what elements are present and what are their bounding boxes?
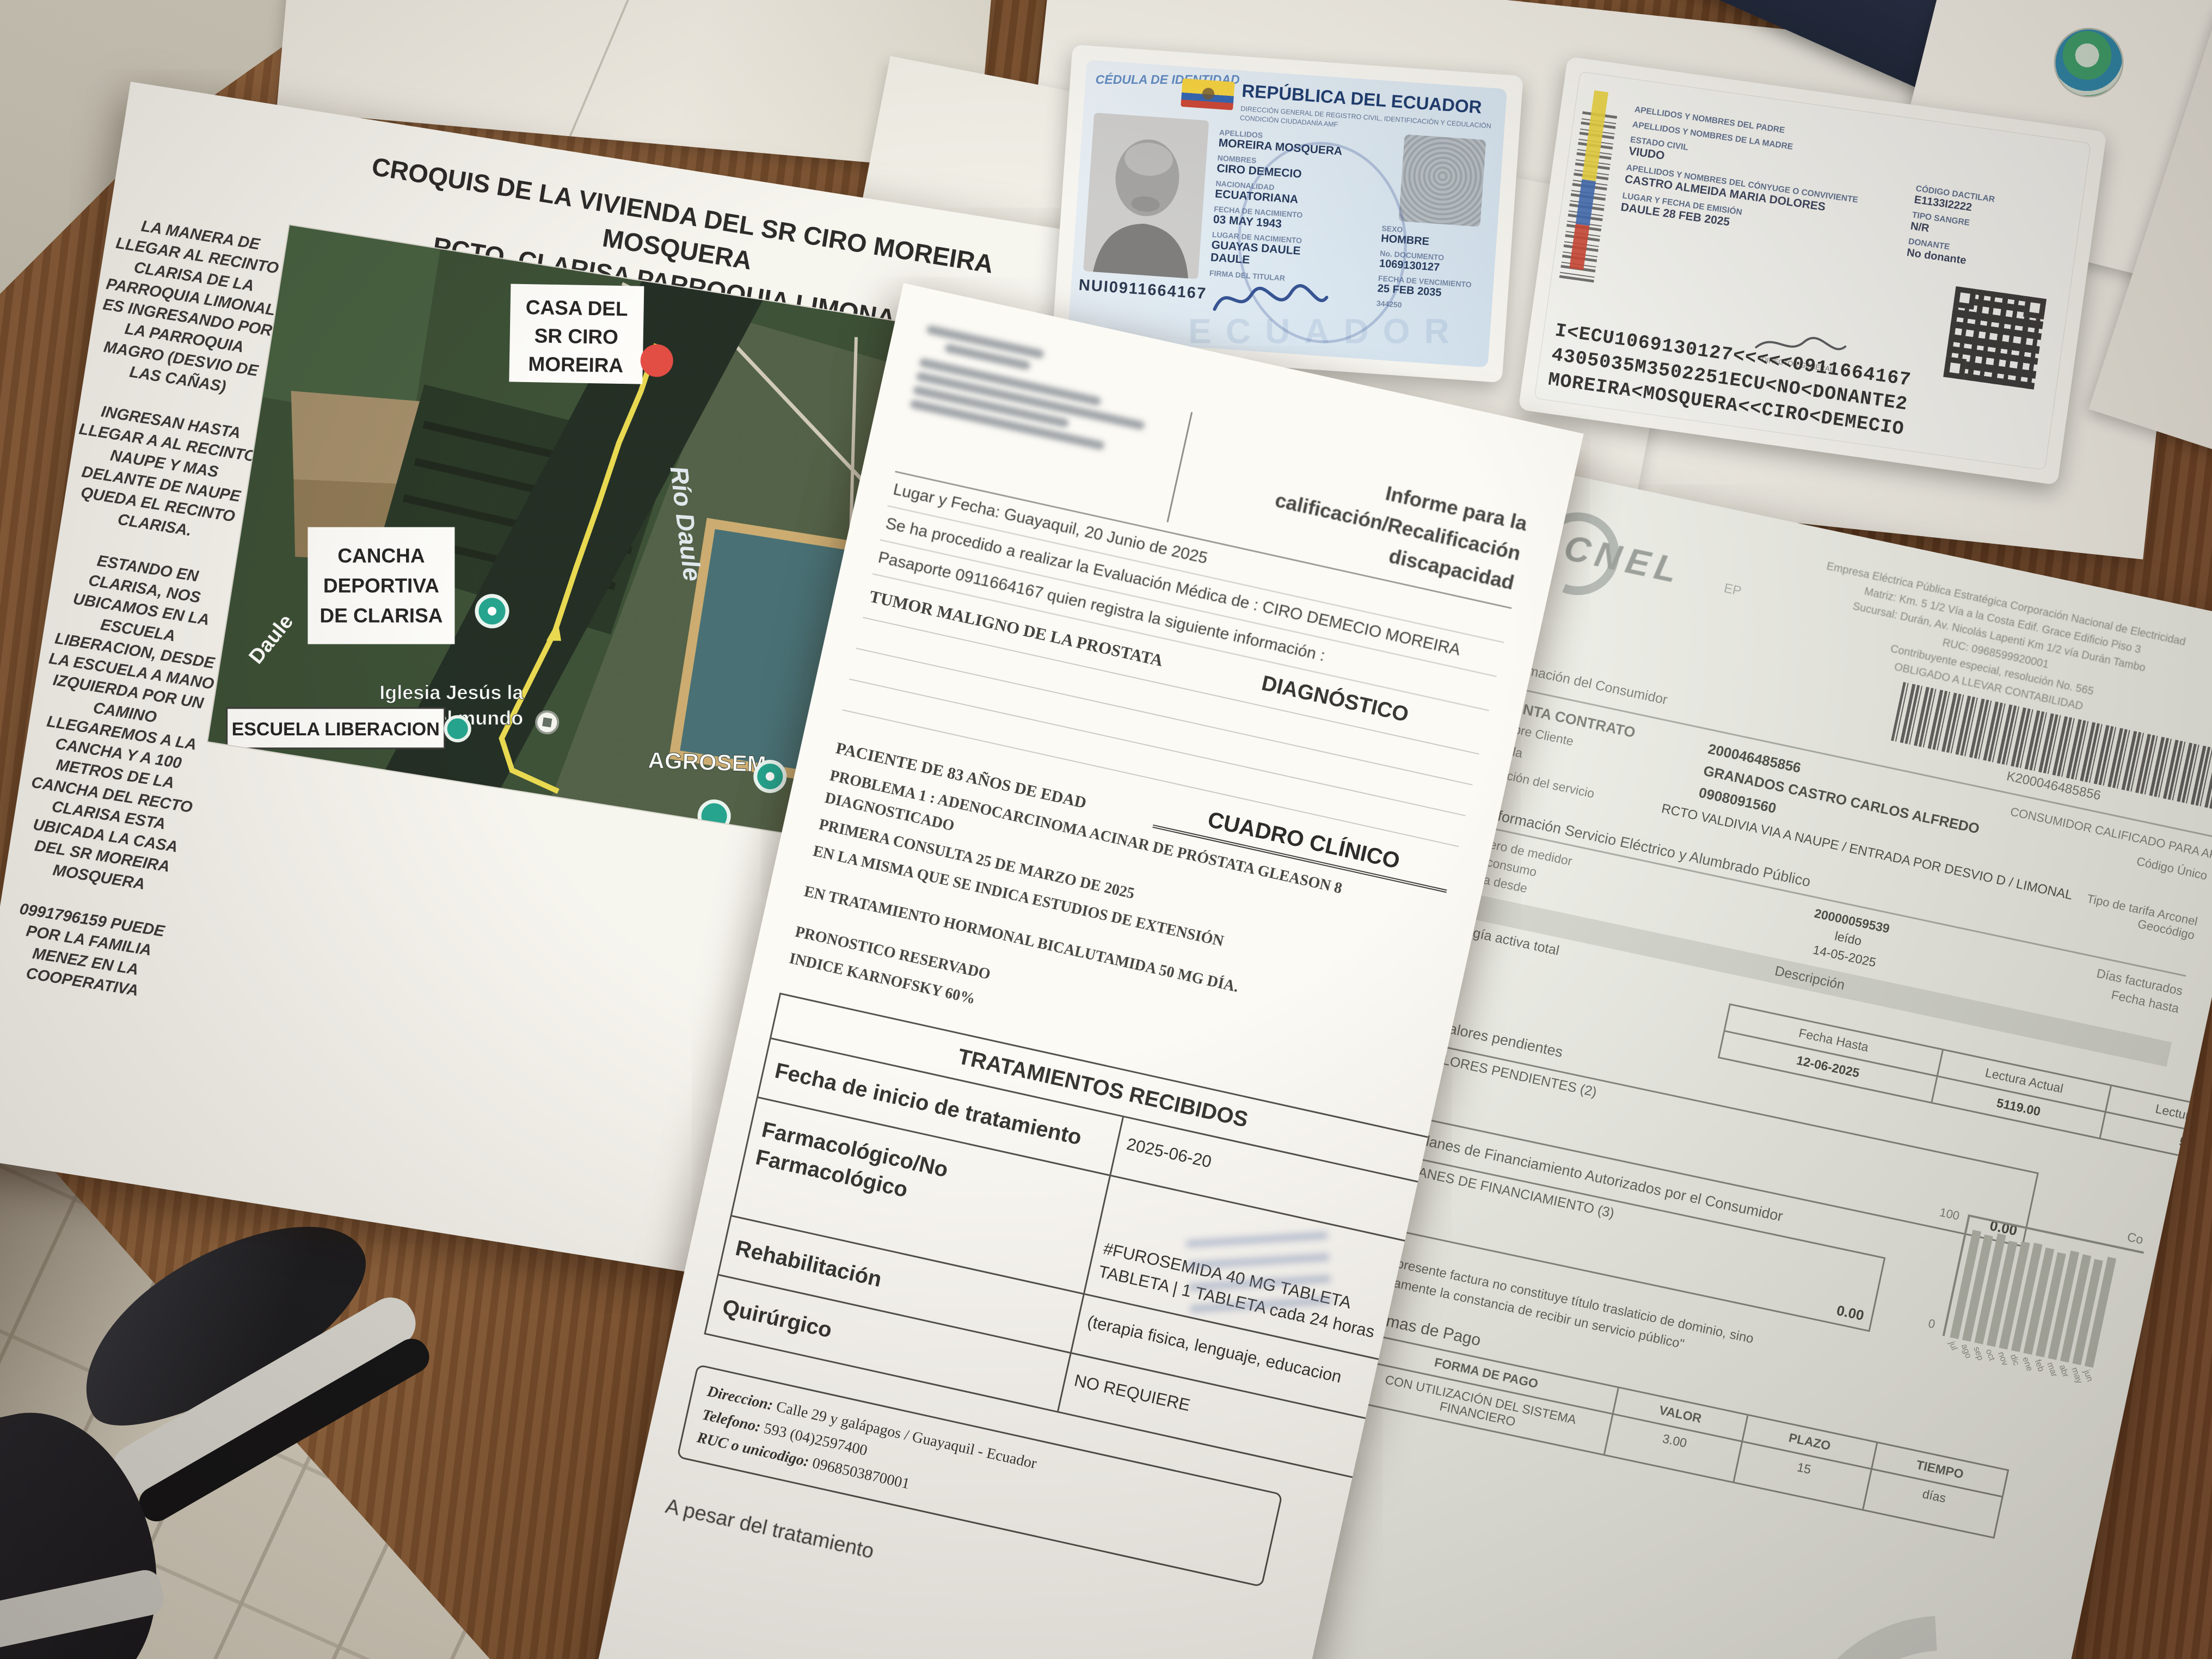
map-label-cancha: CANCHA DEPORTIVA DE CLARISA bbox=[308, 527, 454, 644]
map-marker-iglesia-dot bbox=[542, 717, 552, 727]
croquis-paragraph: LA MANERA DE LLEGAR AL RECINTO CLARISA D… bbox=[87, 211, 291, 404]
map-field bbox=[262, 225, 440, 421]
svg-text:CASA DEL: CASA DEL bbox=[525, 296, 628, 320]
fingerprint-icon bbox=[1399, 134, 1486, 227]
map-marker-escuela bbox=[446, 717, 470, 741]
svg-text:MOREIRA: MOREIRA bbox=[528, 353, 623, 377]
desk-scene: CROQUIS DE LA VIVIENDA DEL SR CIRO MOREI… bbox=[0, 0, 2212, 1659]
map-label-escuela: ESCUELA LIBERACION bbox=[227, 708, 470, 748]
svg-text:SR CIRO: SR CIRO bbox=[534, 324, 618, 348]
back-right-fields: CÓDIGO DACTILAR E1133I2222 TIPO SANGRE N… bbox=[1906, 180, 2068, 280]
croquis-paragraph: INGRESAN HASTA LLEGAR A AL RECINTO NAUPE… bbox=[64, 398, 261, 550]
svg-text:DE CLARISA: DE CLARISA bbox=[319, 604, 443, 626]
chart-title: Co bbox=[2126, 1230, 2145, 1248]
round-logo-sticker bbox=[2047, 20, 2131, 105]
id-card-back: APELLIDOS Y NOMBRES DEL PADRE APELLIDOS … bbox=[1534, 71, 2091, 470]
croquis-paragraph: ESTANDO EN CLARISA, NOS UBICAMOS EN LA E… bbox=[9, 544, 238, 901]
cnel-watermark-icon bbox=[1729, 1553, 2158, 1659]
svg-text:CANCHA: CANCHA bbox=[337, 544, 425, 567]
qr-code bbox=[1943, 286, 2047, 390]
chart-ytick-0: 0 bbox=[1927, 1316, 1936, 1331]
map-label-casa: CASA DEL SR CIRO MOREIRA bbox=[509, 284, 644, 384]
back-left-fields: APELLIDOS Y NOMBRES DEL PADRE APELLIDOS … bbox=[1620, 100, 1938, 256]
svg-text:ESCUELA LIBERACION: ESCUELA LIBERACION bbox=[232, 719, 440, 740]
svg-text:DEPORTIVA: DEPORTIVA bbox=[323, 574, 439, 597]
cnel-logo-ep: EP bbox=[1723, 581, 1743, 599]
faint-stamp bbox=[1186, 1228, 1332, 1313]
id-card-front: CÉDULA DE IDENTIDAD REPÚBLICA DEL ECUADO… bbox=[1067, 60, 1507, 368]
portrait-photo bbox=[1083, 113, 1209, 279]
id-card-back-sleeve: APELLIDOS Y NOMBRES DEL PADRE APELLIDOS … bbox=[1518, 57, 2106, 486]
consumption-chart: Co 100 0 julagosepoctnovdicenefebmarabrm… bbox=[1936, 1214, 2144, 1405]
shoe-second-sole bbox=[0, 1567, 167, 1654]
financing-plans-amount: 0.00 bbox=[1835, 1302, 1865, 1324]
map-label-agrosem: AGROSEM bbox=[648, 747, 767, 777]
card-nui-number: NUI0911664167 bbox=[1078, 276, 1207, 303]
croquis-paragraph: 0991796159 PUEDE POR LA FAMILIA MENEZ EN… bbox=[0, 896, 182, 1006]
svg-text:Iglesia Jesús la: Iglesia Jesús la bbox=[379, 681, 524, 703]
ecuador-flag-icon bbox=[1181, 78, 1234, 110]
